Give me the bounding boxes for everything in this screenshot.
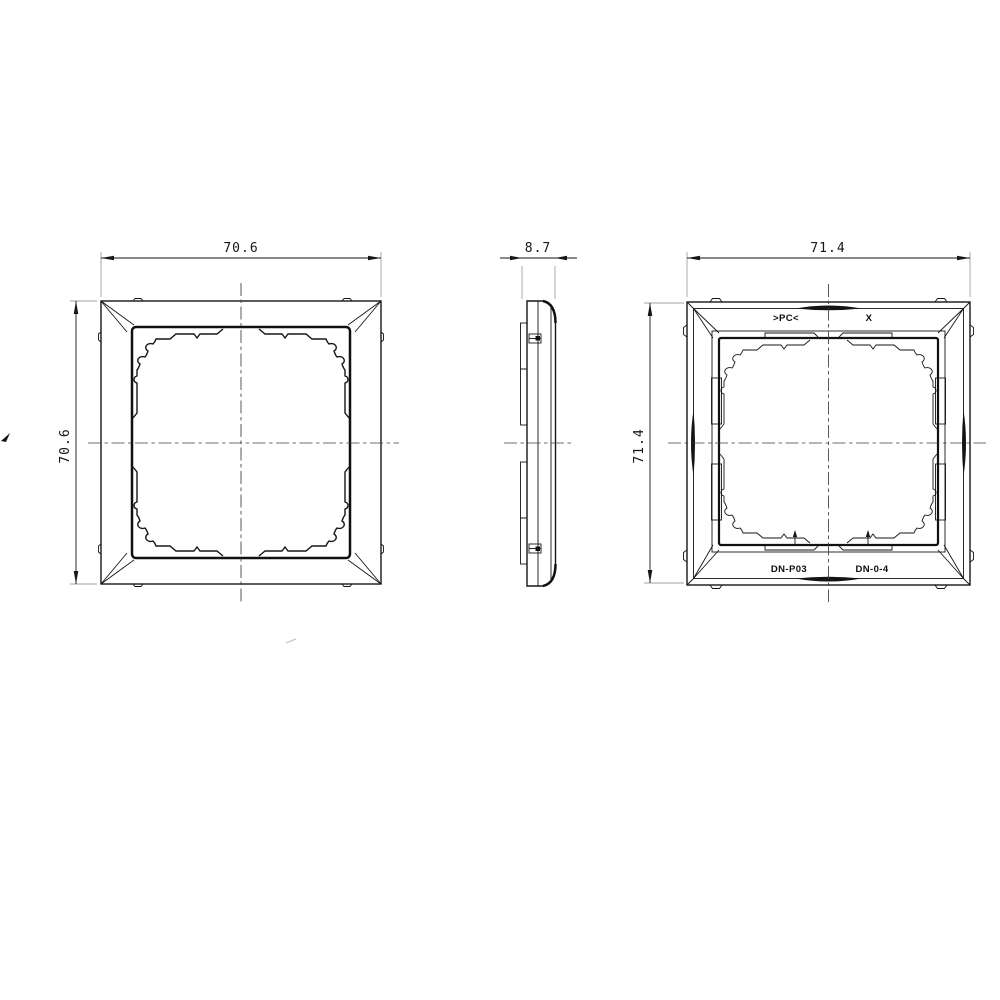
tab [521,323,528,369]
scallop-corner [133,467,223,556]
scallop-corner [847,454,937,543]
side-front-curve-bottom [543,564,556,586]
arrow-icon [957,256,970,261]
extension-lines [70,301,97,584]
arrow-icon [648,303,653,316]
side-thickness-value: 8.7 [525,241,551,256]
side-mounting-tabs [521,323,528,564]
part-number-left: DN-P03 [771,564,807,575]
stray-arrow-mark [1,433,10,442]
latch-pad [536,336,541,341]
scallop-corner [259,467,349,556]
front-view: 70.6 70.6 [58,241,399,602]
tab [521,462,528,518]
arrow-icon [687,256,700,261]
drawing-page: 70.6 70.6 [0,0,1000,1000]
tab [521,518,528,564]
side-thickness-dimension: 8.7 [500,241,577,299]
latch-pad [536,547,541,552]
scallop-corner [847,340,937,429]
pin-tip [866,530,870,537]
scallop-corner [720,454,810,543]
arrow-icon [101,256,114,261]
arrow-icon [648,570,653,583]
side-front-curve-top [543,301,556,323]
back-view: 71.4 71.4 [632,241,986,602]
part-number-right: DN-0-4 [855,564,888,575]
tab [521,369,528,425]
front-height-dimension: 70.6 [58,301,97,584]
front-height-value: 70.6 [58,428,73,463]
side-face-lines [538,301,551,586]
side-latches [529,334,541,553]
technical-drawing-canvas: 70.6 70.6 [0,0,1000,1000]
front-width-value: 70.6 [223,241,258,256]
arrow-icon [555,256,567,261]
arrow-icon [74,301,79,314]
scallop-corner [133,329,223,418]
back-height-value: 71.4 [632,428,647,463]
back-width-value: 71.4 [810,241,845,256]
cavity-marking: X [866,313,873,324]
material-marking: >PC< [773,313,799,324]
scallop-corner [720,340,810,429]
pin-tip [793,530,797,537]
arrow-icon [510,256,522,261]
scallop-corner [259,329,349,418]
side-view: 8.7 [500,241,577,586]
extension-lines [522,266,555,299]
arrow-icon [368,256,381,261]
arrow-icon [74,571,79,584]
stray-faint-mark [286,639,296,643]
